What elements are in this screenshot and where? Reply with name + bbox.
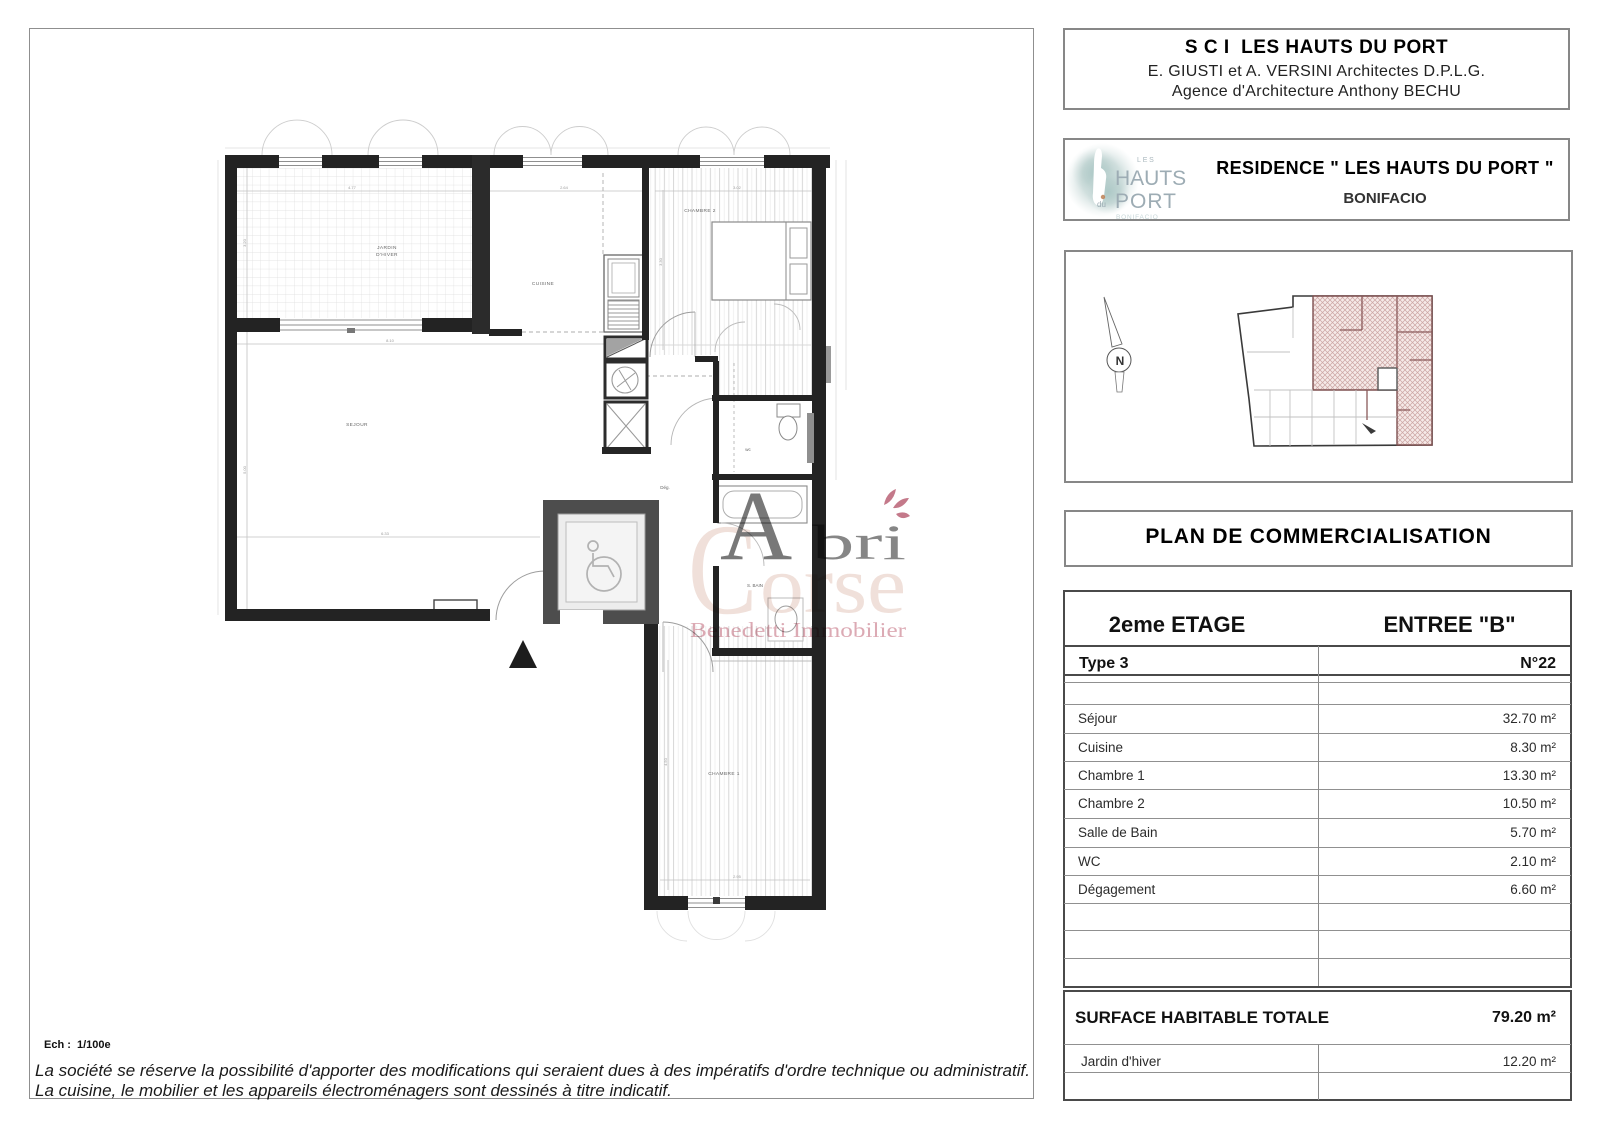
svg-text:2.64: 2.64 (560, 185, 569, 190)
svg-text:2.95: 2.95 (733, 874, 742, 879)
svg-text:5.00: 5.00 (242, 465, 247, 474)
svg-text:du: du (1097, 200, 1106, 209)
svg-text:3.02: 3.02 (733, 185, 742, 190)
svg-text:PORT: PORT (1115, 190, 1177, 213)
svg-text:D'HIVER: D'HIVER (376, 252, 398, 258)
svg-text:SEJOUR: SEJOUR (346, 422, 368, 428)
svg-text:N: N (1116, 354, 1125, 368)
svg-text:bri: bri (812, 514, 906, 570)
svg-text:A: A (720, 470, 792, 581)
svg-text:HAUTS: HAUTS (1115, 167, 1186, 190)
svg-text:BONIFACIO: BONIFACIO (1116, 214, 1159, 221)
svg-text:LES: LES (1137, 157, 1156, 164)
svg-text:4.50: 4.50 (663, 757, 668, 766)
svg-text:8.10: 8.10 (386, 338, 395, 343)
svg-text:3.30: 3.30 (658, 257, 663, 266)
svg-text:4.77: 4.77 (348, 185, 357, 190)
svg-text:CHAMBRE 1: CHAMBRE 1 (708, 771, 740, 777)
svg-text:CHAMBRE 2: CHAMBRE 2 (684, 208, 716, 214)
svg-text:3.20: 3.20 (242, 238, 247, 247)
svg-text:CUISINE: CUISINE (532, 281, 554, 287)
svg-text:JARDIN: JARDIN (377, 245, 397, 251)
svg-text:6.33: 6.33 (381, 531, 390, 536)
svg-text:Benedetti Immobilier: Benedetti Immobilier (690, 618, 906, 642)
